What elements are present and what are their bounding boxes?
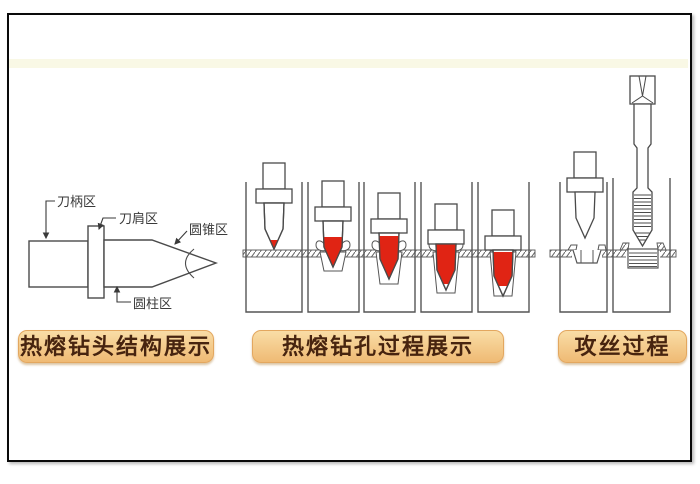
drill-stage-1 — [256, 163, 292, 249]
retracted-drill — [567, 152, 603, 238]
drill-stage-5 — [485, 210, 521, 296]
drill-shoulder-flange — [88, 226, 104, 298]
drill-body-and-cone — [104, 240, 216, 287]
drill-stage-3 — [371, 193, 407, 284]
label-shank-area: 刀柄区 — [57, 194, 96, 209]
flow-drill-structure-diagram — [29, 226, 216, 298]
flow-drilling-diagram: 刀柄区 刀肩区 圆锥区 圆柱区 — [0, 0, 700, 484]
burr-lip-right — [598, 245, 606, 250]
structure-section-badge: 热熔钻头结构展示 — [18, 330, 214, 363]
drill-stage-4 — [428, 204, 464, 293]
leader-shank — [46, 201, 55, 238]
label-cone-area: 圆锥区 — [189, 222, 228, 237]
screenshot-canvas: 刀柄区 刀肩区 圆锥区 圆柱区 — [0, 0, 700, 484]
label-shoulder-area: 刀肩区 — [119, 211, 158, 226]
tap-head — [630, 76, 655, 104]
process-section-badge: 热熔钻孔过程展示 — [252, 330, 504, 363]
formed-bushing — [573, 250, 601, 263]
burr-lip-left — [568, 245, 577, 250]
tapping-section-badge: 攻丝过程 — [558, 330, 687, 363]
retracted-drill-panel — [567, 152, 606, 264]
drill-stage-2 — [315, 181, 351, 271]
leader-cylinder — [117, 287, 131, 302]
tapping-panel — [620, 76, 666, 270]
leader-cone — [175, 231, 187, 244]
threaded-bushing — [628, 249, 658, 268]
label-cylinder-area: 圆柱区 — [133, 296, 172, 311]
tap-shaft — [633, 104, 652, 246]
drill-shank — [29, 241, 88, 287]
tap-tool — [630, 76, 655, 246]
